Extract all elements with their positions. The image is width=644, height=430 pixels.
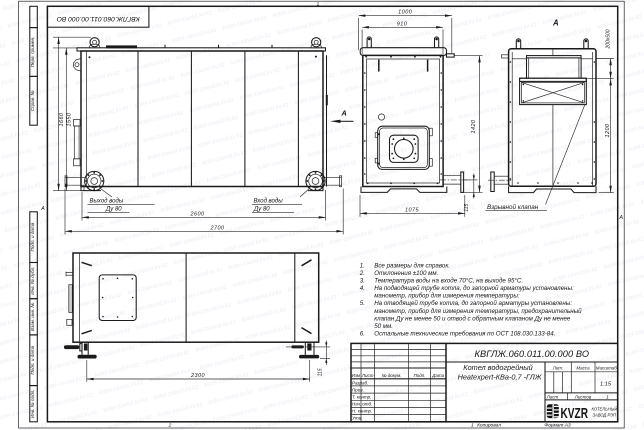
svg-text:А: А (552, 18, 559, 27)
svg-text:Лист: Лист (361, 373, 374, 378)
svg-text:1420: 1420 (471, 119, 477, 134)
svg-text:2300: 2300 (190, 373, 206, 379)
svg-text:Справ. №: Справ. № (30, 90, 35, 111)
svg-text:Температура воды на входе 70°С: Температура воды на входе 70°С, на выход… (374, 278, 523, 285)
svg-text:Разраб.: Разраб. (352, 380, 368, 385)
svg-text:клапан Ду не менее 50 и отвод: клапан Ду не менее 50 и отвод с обратным… (374, 315, 571, 322)
svg-text:ЗАВОД РЭП: ЗАВОД РЭП (593, 413, 617, 418)
svg-text:4.: 4. (360, 285, 365, 292)
svg-text:манометр, прибор для измерения: манометр, прибор для измерения температу… (374, 308, 582, 315)
svg-text:Инв. № подл.: Инв. № подл. (30, 389, 35, 418)
svg-text:Изм: Изм (352, 373, 360, 378)
svg-text:115: 115 (464, 204, 470, 212)
svg-text:Ду 80: Ду 80 (105, 207, 122, 213)
svg-text:Перв. примен.: Перв. примен. (30, 37, 35, 68)
svg-text:Масса: Масса (576, 365, 590, 370)
svg-text:Heatexpert-КВа-0,7 -ГЛЖ: Heatexpert-КВа-0,7 -ГЛЖ (458, 373, 543, 382)
svg-text:А: А (40, 206, 45, 212)
svg-text:Формат А3: Формат А3 (544, 422, 571, 428)
svg-text:Выход воды: Выход воды (90, 199, 124, 205)
svg-text:Дата: Дата (431, 373, 444, 378)
svg-text:115: 115 (317, 368, 323, 376)
svg-text:1: 1 (471, 422, 474, 428)
svg-text:На подводящей трубе котла, до: На подводящей трубе котла, до запорной а… (374, 285, 574, 292)
svg-text:3.: 3. (360, 278, 365, 285)
svg-text:1660: 1660 (59, 112, 65, 127)
svg-text:2.: 2. (359, 270, 365, 277)
svg-text:Взрывной клапан: Взрывной клапан (487, 203, 539, 211)
svg-text:Подп. и дата: Подп. и дата (30, 345, 35, 374)
svg-text:6.: 6. (360, 330, 365, 337)
svg-text:КВГЛЖ.060.011.00.000 ВО: КВГЛЖ.060.011.00.000 ВО (56, 15, 140, 22)
svg-text:манометр, прибор для измерения: манометр, прибор для измерения температу… (374, 293, 520, 300)
svg-text:КОТЕЛЬНЫЙ: КОТЕЛЬНЫЙ (592, 407, 618, 412)
svg-text:1075: 1075 (405, 208, 420, 214)
svg-text:Копировал: Копировал (477, 422, 501, 428)
svg-text:5.: 5. (360, 300, 365, 307)
svg-text:50 мм.: 50 мм. (374, 323, 393, 330)
svg-text:Ду 80: Ду 80 (253, 207, 270, 213)
svg-text:1:15: 1:15 (600, 382, 612, 388)
svg-text:Т. контр.: Т. контр. (352, 395, 371, 400)
svg-text:KVZR: KVZR (561, 405, 589, 422)
svg-text:Подп.: Подп. (414, 373, 426, 378)
svg-text:Котел водогрейный: Котел водогрейный (463, 363, 532, 372)
svg-text:КВГЛЖ.060.011.00.000 ВО: КВГЛЖ.060.011.00.000 ВО (474, 349, 589, 359)
svg-text:2700: 2700 (209, 226, 225, 232)
svg-text:2: 2 (317, 1, 320, 6)
svg-text:200х500: 200х500 (605, 29, 611, 49)
svg-text:Листов: Листов (574, 394, 592, 399)
svg-text:Взам. инв. №: Взам. инв. № (30, 303, 35, 331)
svg-text:Масштаб: Масштаб (596, 365, 617, 370)
svg-text:1550: 1550 (67, 112, 73, 127)
svg-text:1000: 1000 (398, 10, 413, 16)
svg-text:А: А (340, 109, 346, 118)
svg-text:Лит.: Лит. (552, 365, 564, 370)
svg-text:2600: 2600 (189, 212, 205, 218)
svg-text:А: А (618, 215, 623, 221)
svg-text:910: 910 (397, 21, 408, 27)
svg-text:Вход воды: Вход воды (254, 199, 284, 205)
svg-text:Инв. № дубл.: Инв. № дубл. (30, 266, 35, 294)
svg-text:Все размеры для справок.: Все размеры для справок. (374, 263, 450, 270)
svg-text:Отклонения ±100 мм.: Отклонения ±100 мм. (374, 270, 438, 277)
svg-text:Лист: Лист (546, 394, 559, 399)
svg-text:На отводящей трубе котла, до з: На отводящей трубе котла, до запорной ар… (374, 300, 572, 307)
svg-text:1200: 1200 (605, 123, 611, 138)
svg-text:Утв.: Утв. (352, 416, 362, 421)
svg-text:Пров.: Пров. (352, 388, 364, 393)
svg-text:1.: 1. (360, 263, 365, 270)
svg-text:№ докум.: № докум. (382, 373, 402, 378)
svg-text:Остальные технические требован: Остальные технические требования по ОСТ … (374, 330, 555, 337)
svg-text:2: 2 (168, 422, 172, 428)
svg-text:Нач. отд.: Нач. отд. (352, 402, 372, 407)
svg-text:Н. контр.: Н. контр. (352, 409, 372, 414)
svg-text:Подп. и дата: Подп. и дата (30, 222, 35, 251)
